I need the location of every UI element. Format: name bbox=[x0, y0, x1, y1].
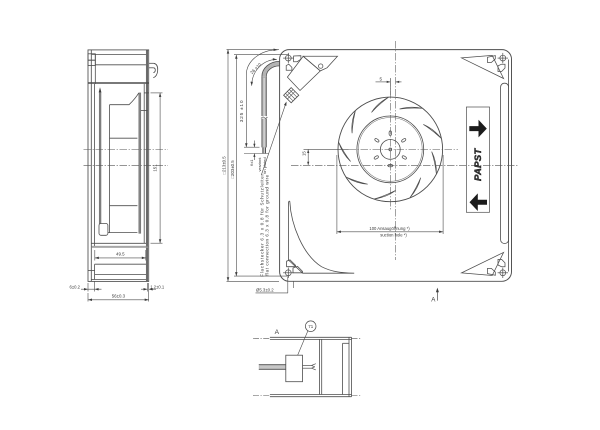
svg-text:Ø5.3±0.2: Ø5.3±0.2 bbox=[256, 288, 274, 293]
svg-text:71: 71 bbox=[308, 324, 313, 329]
svg-text:6±0.2: 6±0.2 bbox=[70, 284, 81, 289]
svg-text:suction hole *): suction hole *) bbox=[380, 232, 407, 237]
svg-text:100 Ansaugöffnung *): 100 Ansaugöffnung *) bbox=[369, 226, 410, 231]
svg-text:1.2±0.1: 1.2±0.1 bbox=[150, 284, 165, 289]
svg-text:□203±0.5: □203±0.5 bbox=[230, 160, 235, 179]
svg-text:flat connection 6.3 x 0.8 for: flat connection 6.3 x 0.8 for ground wir… bbox=[265, 174, 270, 275]
svg-text:151: 151 bbox=[153, 164, 158, 172]
svg-text:□213±0.5: □213±0.5 bbox=[222, 156, 227, 175]
svg-text:6±1: 6±1 bbox=[249, 159, 254, 166]
svg-text:15: 15 bbox=[301, 151, 306, 156]
svg-text:PAPST: PAPST bbox=[473, 148, 484, 181]
svg-text:325 ±10: 325 ±10 bbox=[239, 100, 245, 123]
svg-text:5: 5 bbox=[380, 76, 383, 81]
svg-text:49.5: 49.5 bbox=[116, 252, 125, 257]
svg-text:A: A bbox=[275, 329, 280, 336]
svg-text:56±0.3: 56±0.3 bbox=[112, 294, 126, 299]
